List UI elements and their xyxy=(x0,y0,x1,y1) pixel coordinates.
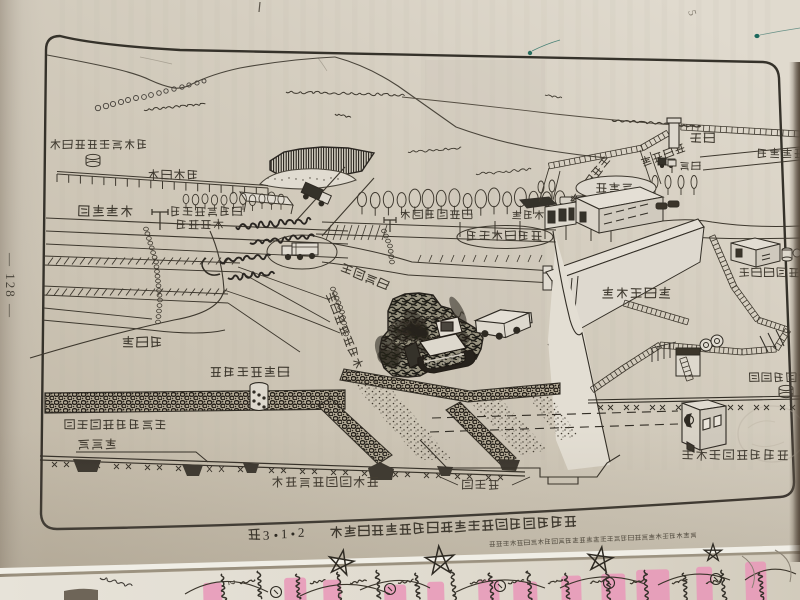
svg-text:— 128 —: — 128 — xyxy=(3,252,18,319)
svg-text:2: 2 xyxy=(298,525,305,540)
svg-text:3: 3 xyxy=(263,528,270,543)
svg-text:1: 1 xyxy=(281,526,288,541)
